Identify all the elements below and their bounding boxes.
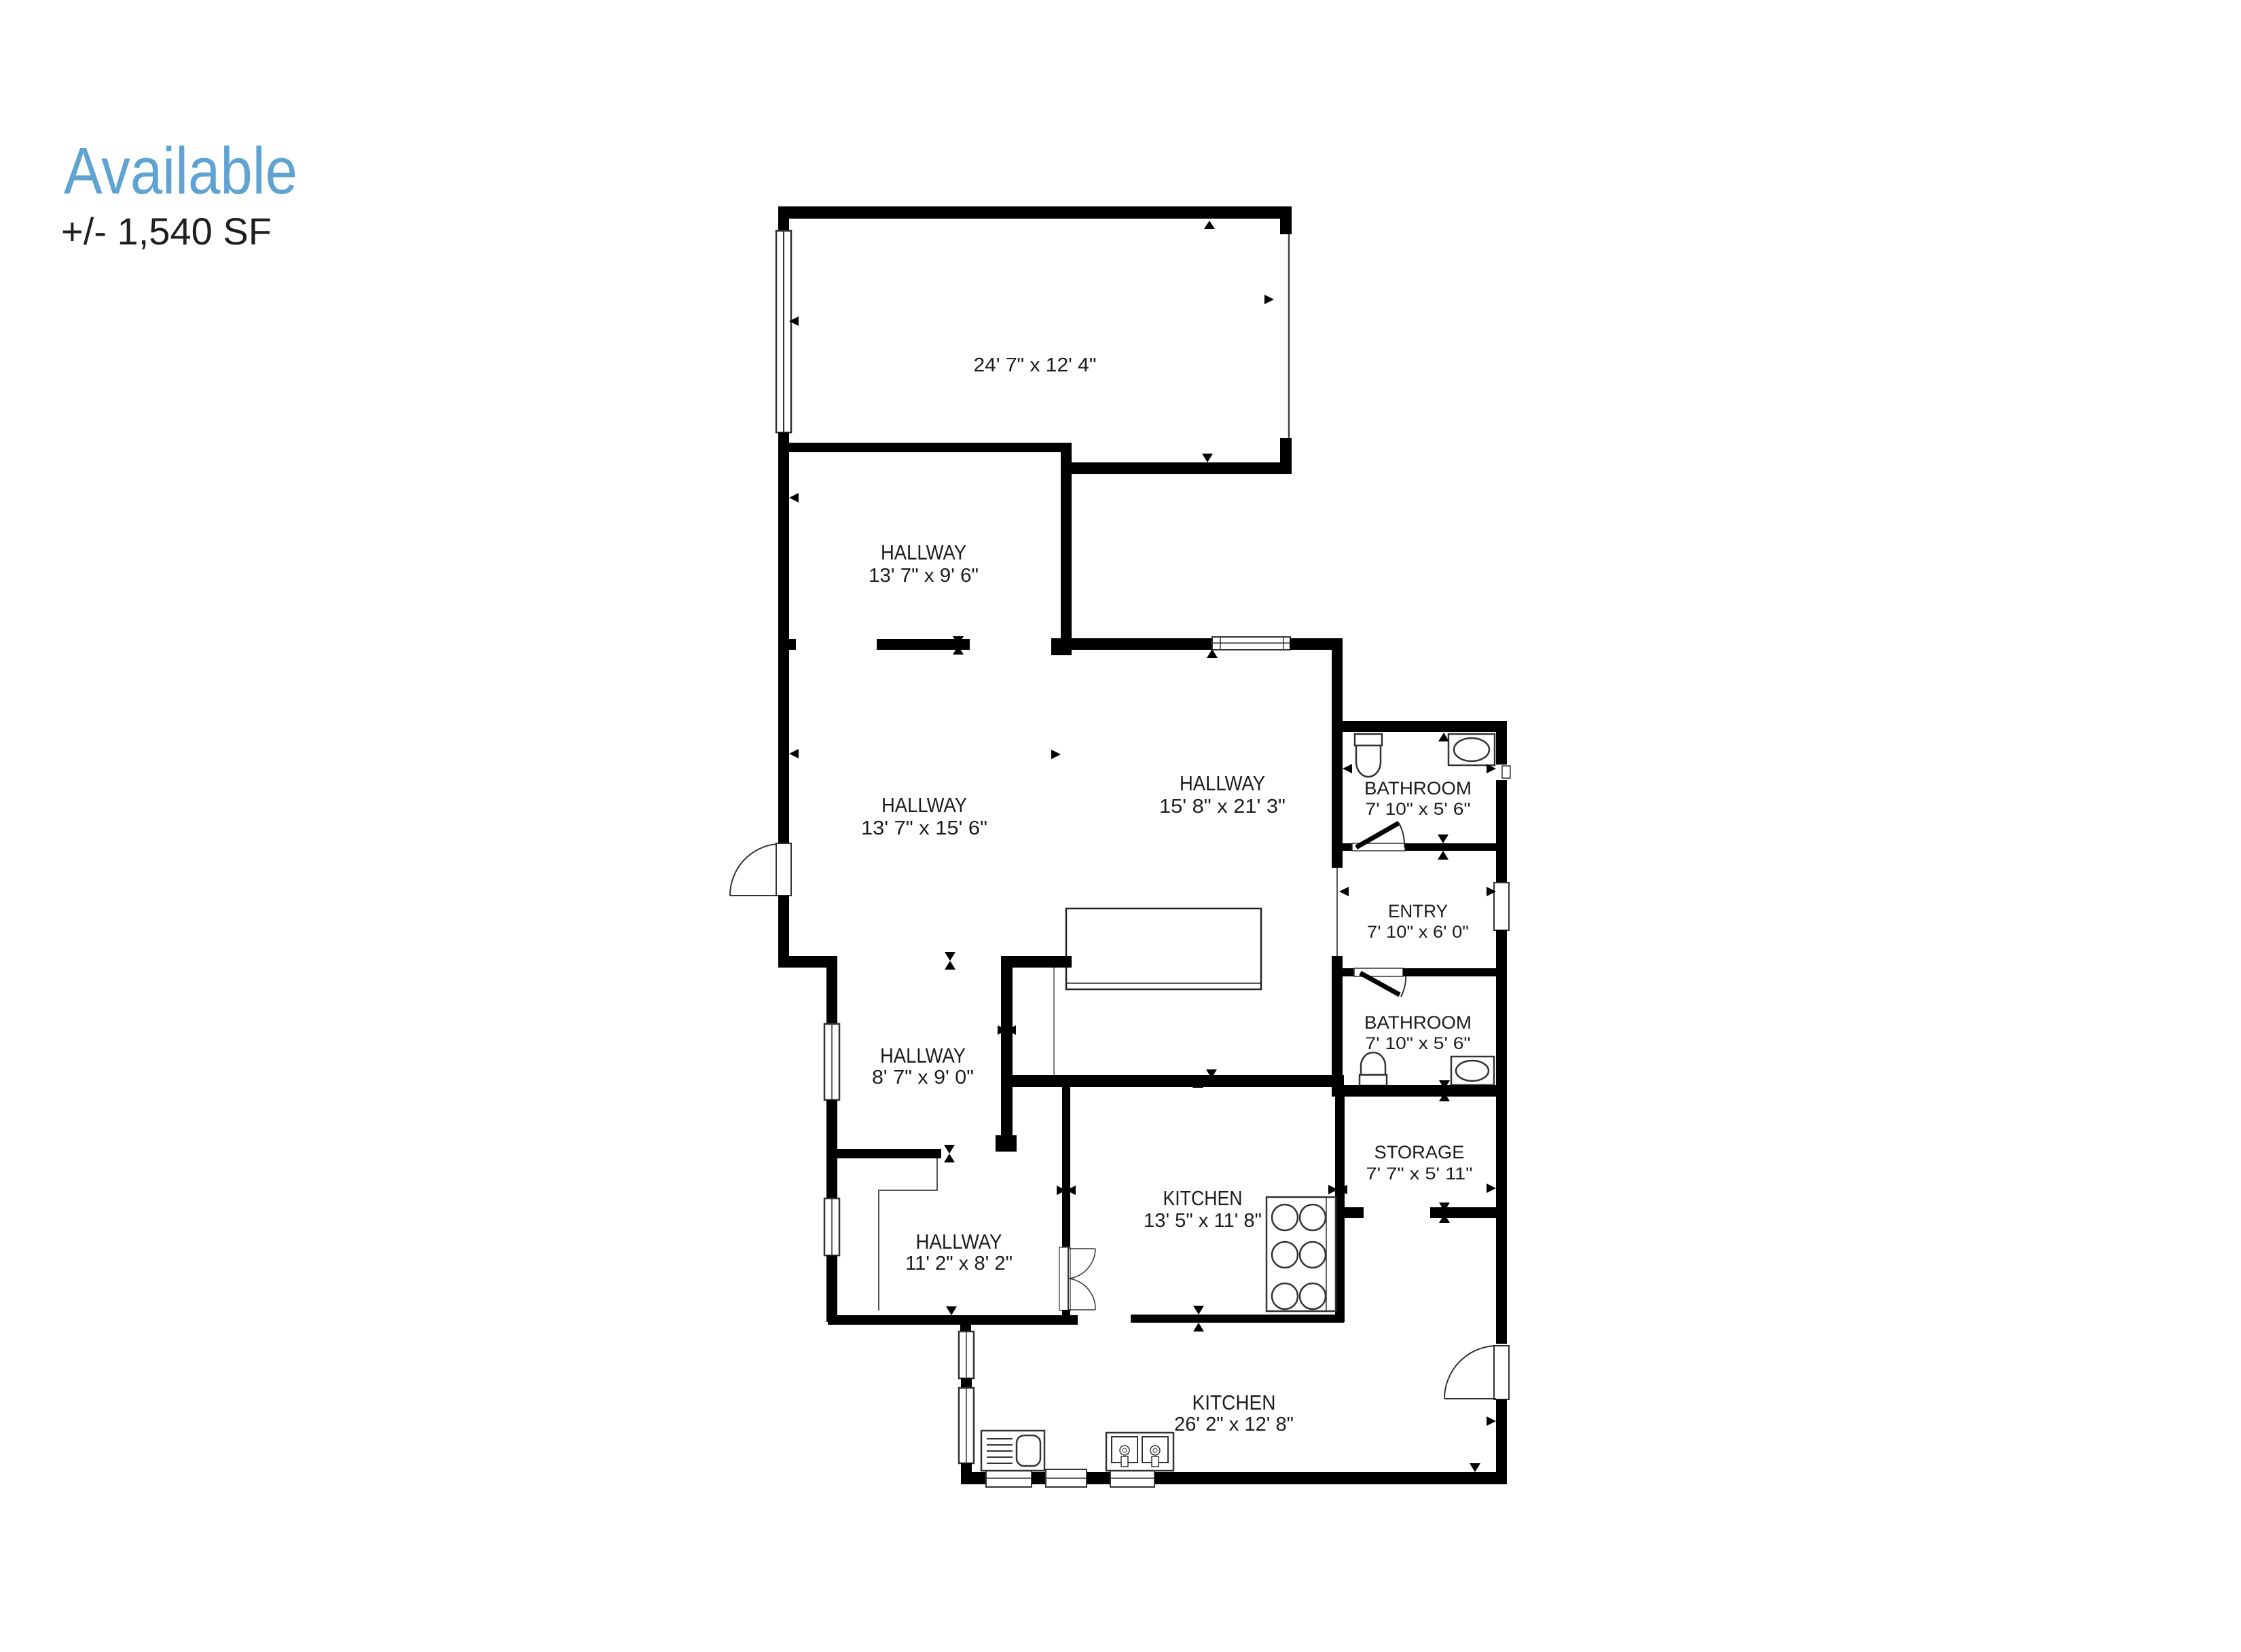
svg-text:HALLWAY: HALLWAY [880,1044,966,1067]
svg-text:BATHROOM: BATHROOM [1364,1012,1472,1033]
svg-text:7' 10" x 6' 0": 7' 10" x 6' 0" [1367,923,1469,942]
svg-text:8' 7" x 9' 0": 8' 7" x 9' 0" [872,1067,974,1088]
svg-text:15' 8" x 21' 3": 15' 8" x 21' 3" [1159,796,1286,818]
svg-text:7' 10" x 5' 6": 7' 10" x 5' 6" [1366,1034,1471,1053]
svg-text:BATHROOM: BATHROOM [1364,778,1472,799]
svg-text:13' 7" x 9' 6": 13' 7" x 9' 6" [869,565,979,587]
svg-text:STORAGE: STORAGE [1374,1142,1465,1162]
svg-text:KITCHEN: KITCHEN [1192,1391,1276,1414]
svg-text:13' 5" x 11' 8": 13' 5" x 11' 8" [1144,1210,1262,1232]
svg-text:11' 2" x 8' 2": 11' 2" x 8' 2" [905,1253,1013,1274]
svg-text:7' 7" x 5' 11": 7' 7" x 5' 11" [1366,1164,1473,1183]
svg-text:13' 7" x 15' 6": 13' 7" x 15' 6" [861,818,987,839]
svg-text:KITCHEN: KITCHEN [1163,1186,1243,1210]
svg-text:HALLWAY: HALLWAY [916,1230,1002,1253]
svg-text:+/- 1,540 SF: +/- 1,540 SF [61,210,272,253]
svg-text:7' 10" x 5' 6": 7' 10" x 5' 6" [1366,800,1471,819]
svg-text:HALLWAY: HALLWAY [881,540,966,564]
svg-text:HALLWAY: HALLWAY [1180,771,1265,795]
svg-text:Available: Available [64,134,297,208]
svg-text:24' 7" x 12' 4": 24' 7" x 12' 4" [974,354,1097,376]
svg-text:HALLWAY: HALLWAY [881,793,967,817]
svg-text:ENTRY: ENTRY [1388,901,1448,921]
svg-text:26' 2" x 12' 8": 26' 2" x 12' 8" [1174,1414,1294,1435]
